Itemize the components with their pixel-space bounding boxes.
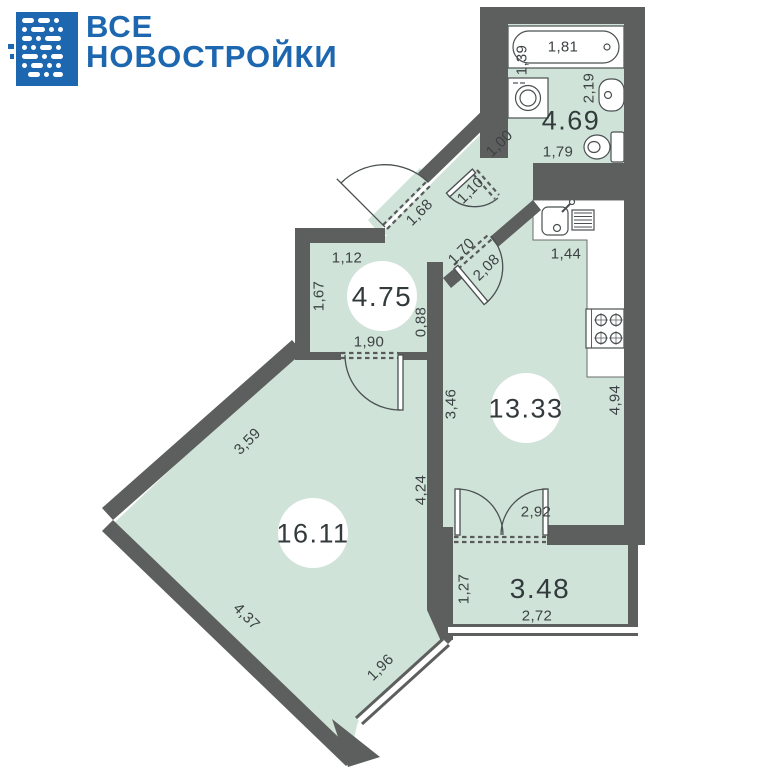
dim-kitchen-right: 4,94 [606, 385, 623, 415]
dim-balcony-door: 2,92 [521, 503, 551, 520]
logo-icon [8, 12, 78, 92]
bathroom-sink-icon [599, 79, 624, 111]
kitchen-area-label: 13.33 [488, 393, 563, 423]
balcony-window-line-inner [448, 633, 638, 636]
wall-right [624, 7, 645, 545]
balcony-area-label: 3.48 [510, 573, 571, 604]
stove-icon [586, 309, 624, 348]
dim-balcony-bottom: 2,72 [522, 607, 552, 624]
dim-hall-living-door: 1,90 [354, 333, 384, 350]
logo-line1: ВСЕ [86, 12, 338, 42]
dim-balcony-left: 1,27 [455, 574, 472, 604]
wall-balcony-jamb-left [427, 527, 453, 547]
dim-hall-left: 1,67 [310, 281, 327, 311]
balcony-window-gap [448, 627, 638, 633]
wall-balcony-right [628, 545, 638, 632]
logo-text: ВСЕ НОВОСТРОЙКИ [86, 12, 338, 73]
wall-bathroom-bottom [533, 163, 645, 200]
dim-hall-nook: 0,88 [412, 307, 429, 337]
living-area-label: 16.11 [276, 518, 349, 548]
bathroom-area-label: 4.69 [542, 105, 601, 135]
wall-hallway-bottom-left [310, 352, 341, 360]
dim-hall-top: 1,12 [332, 249, 362, 266]
wall-kitchen-bottom [547, 525, 645, 545]
toilet-icon [584, 132, 624, 162]
dim-bath-side: 2,19 [580, 73, 597, 103]
dim-kitchen-counter: 1,44 [551, 245, 581, 262]
page: 4.69 4.75 13.33 16.11 3.48 1,81 1,39 2,1… [0, 0, 768, 768]
floor-plan-container: 4.69 4.75 13.33 16.11 3.48 1,81 1,39 2,1… [0, 0, 768, 768]
dim-tub-length: 1,81 [548, 38, 578, 55]
dim-bath-bottom: 1,79 [543, 143, 573, 160]
hallway-area-label: 4.75 [352, 281, 413, 312]
dim-kitchen-left: 3,46 [442, 389, 459, 419]
logo: ВСЕ НОВОСТРОЙКИ [8, 12, 338, 92]
dim-tub-width: 1,39 [513, 45, 530, 75]
logo-line2: НОВОСТРОЙКИ [86, 42, 338, 72]
balcony-window-line-outer [448, 624, 638, 627]
dim-living-right: 4,24 [412, 475, 429, 505]
wall-hallway-left [295, 228, 310, 360]
floor-plan: 4.69 4.75 13.33 16.11 3.48 1,81 1,39 2,1… [0, 0, 768, 768]
